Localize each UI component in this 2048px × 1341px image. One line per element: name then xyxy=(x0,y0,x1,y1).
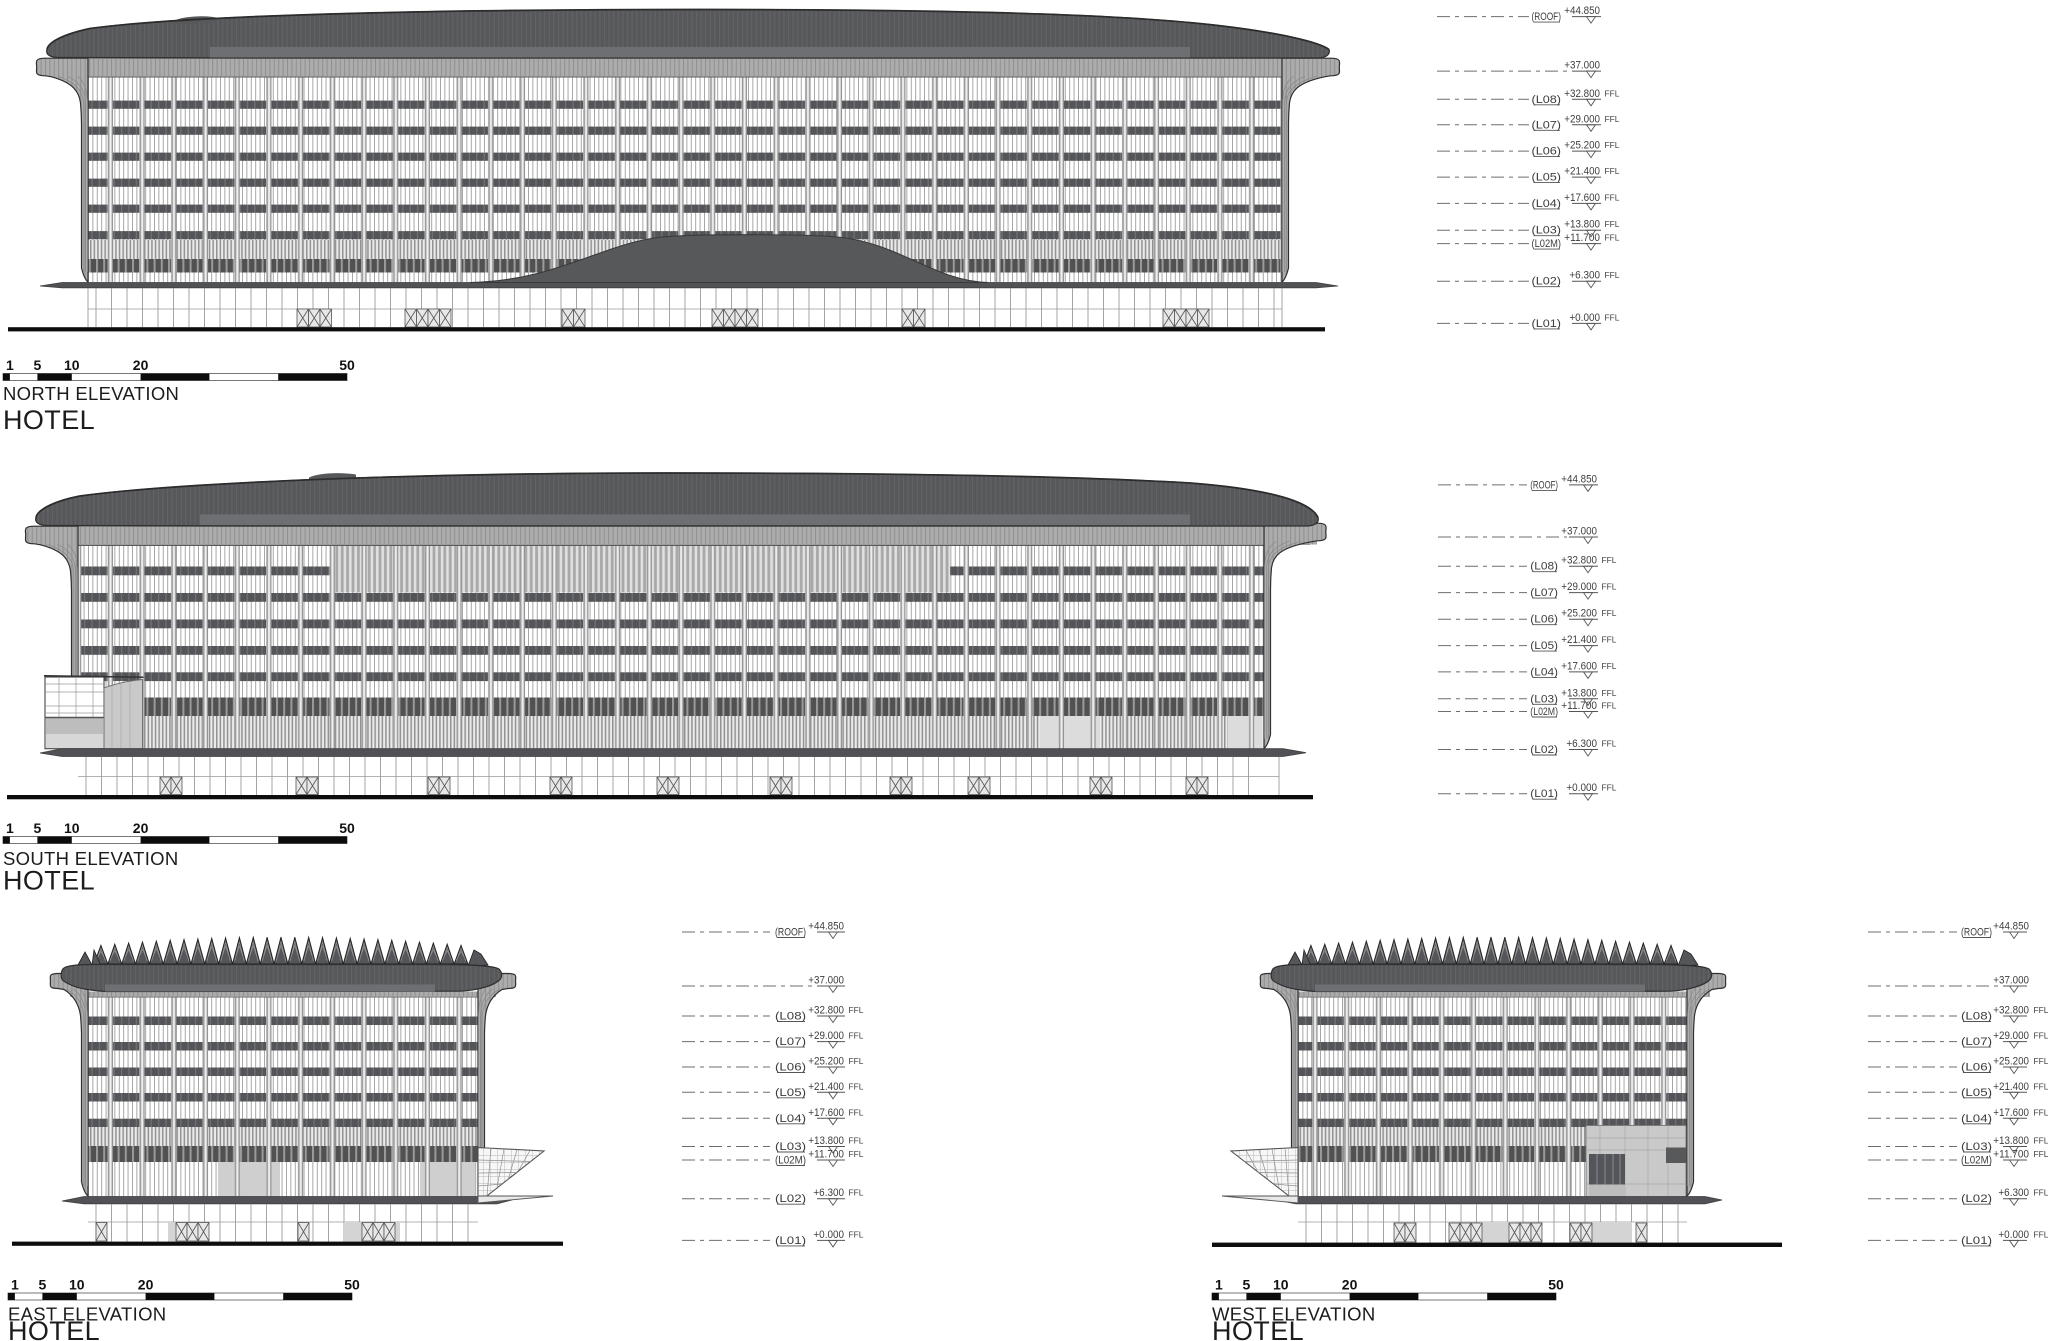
svg-text:10: 10 xyxy=(64,357,80,373)
svg-text:+25.200: +25.200 xyxy=(1564,140,1600,152)
svg-text:+44.850: +44.850 xyxy=(1564,5,1600,17)
svg-text:FFL: FFL xyxy=(1605,114,1620,124)
svg-text:50: 50 xyxy=(339,357,355,373)
svg-text:(L01): (L01) xyxy=(1530,788,1558,800)
svg-text:50: 50 xyxy=(339,820,355,836)
svg-text:+11.700: +11.700 xyxy=(1993,1149,2029,1161)
svg-text:20: 20 xyxy=(133,820,149,836)
svg-text:+0.000: +0.000 xyxy=(813,1229,844,1241)
svg-text:FFL: FFL xyxy=(849,1056,864,1066)
svg-text:+25.200: +25.200 xyxy=(1561,608,1597,620)
svg-text:FFL: FFL xyxy=(1605,270,1620,280)
svg-text:+37.000: +37.000 xyxy=(1564,60,1600,72)
svg-text:(L04): (L04) xyxy=(775,1113,806,1125)
svg-text:+6.300: +6.300 xyxy=(1998,1187,2029,1199)
svg-text:(L03): (L03) xyxy=(775,1141,806,1153)
svg-text:FFL: FFL xyxy=(1605,140,1620,150)
svg-text:FFL: FFL xyxy=(2034,1188,2048,1198)
svg-text:+13.800: +13.800 xyxy=(1564,219,1600,231)
svg-text:20: 20 xyxy=(138,1277,154,1293)
svg-text:(L04): (L04) xyxy=(1532,198,1562,210)
svg-text:FFL: FFL xyxy=(2034,1229,2048,1239)
svg-text:(L08): (L08) xyxy=(1532,94,1562,106)
svg-text:+44.850: +44.850 xyxy=(808,921,844,933)
svg-text:+11.700: +11.700 xyxy=(808,1149,844,1161)
svg-text:FFL: FFL xyxy=(849,1081,864,1091)
svg-text:(L03): (L03) xyxy=(1530,693,1558,705)
svg-text:(L02M): (L02M) xyxy=(1961,1155,1992,1167)
svg-text:20: 20 xyxy=(133,357,149,373)
svg-text:FFL: FFL xyxy=(2034,1149,2048,1159)
svg-text:FFL: FFL xyxy=(2034,1081,2048,1091)
svg-text:FFL: FFL xyxy=(849,1149,864,1159)
svg-text:FFL: FFL xyxy=(1605,312,1620,322)
svg-text:50: 50 xyxy=(344,1277,360,1293)
svg-text:HOTEL: HOTEL xyxy=(3,866,95,896)
svg-text:FFL: FFL xyxy=(1602,608,1617,618)
svg-text:+32.800: +32.800 xyxy=(808,1005,844,1017)
svg-text:+6.300: +6.300 xyxy=(1569,270,1600,282)
svg-text:+0.000: +0.000 xyxy=(1998,1229,2029,1241)
svg-text:(L06): (L06) xyxy=(775,1062,806,1074)
svg-text:+32.800: +32.800 xyxy=(1561,555,1597,567)
svg-text:+21.400: +21.400 xyxy=(808,1081,844,1093)
svg-text:+37.000: +37.000 xyxy=(808,975,844,987)
svg-text:5: 5 xyxy=(34,357,42,373)
svg-text:HOTEL: HOTEL xyxy=(1212,1316,1304,1341)
svg-text:(ROOF): (ROOF) xyxy=(1532,11,1562,23)
svg-text:(L02M): (L02M) xyxy=(1530,706,1558,718)
svg-text:+17.600: +17.600 xyxy=(808,1107,844,1119)
svg-text:(ROOF): (ROOF) xyxy=(1530,479,1558,491)
svg-text:+13.800: +13.800 xyxy=(808,1135,844,1147)
svg-text:(ROOF): (ROOF) xyxy=(1961,927,1992,939)
svg-text:(L02): (L02) xyxy=(1530,744,1558,756)
svg-text:(L08): (L08) xyxy=(1961,1011,1992,1023)
svg-text:+6.300: +6.300 xyxy=(1566,738,1597,750)
svg-text:10: 10 xyxy=(1273,1277,1289,1293)
svg-text:(L05): (L05) xyxy=(775,1087,806,1099)
svg-text:+21.400: +21.400 xyxy=(1564,166,1600,178)
svg-text:FFL: FFL xyxy=(1602,661,1617,671)
svg-text:FFL: FFL xyxy=(1605,192,1620,202)
svg-text:1: 1 xyxy=(6,357,14,373)
svg-text:+13.800: +13.800 xyxy=(1561,687,1597,699)
svg-text:(L08): (L08) xyxy=(775,1011,806,1023)
svg-text:(L05): (L05) xyxy=(1532,172,1562,184)
svg-text:+13.800: +13.800 xyxy=(1993,1135,2029,1147)
svg-text:(L08): (L08) xyxy=(1530,561,1558,573)
svg-text:FFL: FFL xyxy=(2034,1136,2048,1146)
svg-text:(L02): (L02) xyxy=(1961,1193,1992,1205)
svg-text:(L06): (L06) xyxy=(1961,1062,1992,1074)
svg-text:20: 20 xyxy=(1342,1277,1358,1293)
svg-text:+37.000: +37.000 xyxy=(1993,975,2029,987)
svg-text:+32.800: +32.800 xyxy=(1993,1005,2029,1017)
svg-text:(L02M): (L02M) xyxy=(775,1155,806,1167)
svg-text:(L07): (L07) xyxy=(775,1036,806,1048)
svg-text:+44.850: +44.850 xyxy=(1993,921,2029,933)
svg-text:+17.600: +17.600 xyxy=(1993,1107,2029,1119)
svg-text:+25.200: +25.200 xyxy=(1993,1056,2029,1068)
svg-text:FFL: FFL xyxy=(849,1005,864,1015)
svg-text:+29.000: +29.000 xyxy=(808,1030,844,1042)
svg-text:+25.200: +25.200 xyxy=(808,1056,844,1068)
svg-text:+0.000: +0.000 xyxy=(1569,312,1600,324)
svg-text:+29.000: +29.000 xyxy=(1561,581,1597,593)
svg-text:5: 5 xyxy=(34,820,42,836)
svg-text:FFL: FFL xyxy=(1602,783,1617,793)
svg-text:(L02): (L02) xyxy=(775,1193,806,1205)
svg-text:FFL: FFL xyxy=(2034,1031,2048,1041)
svg-text:FFL: FFL xyxy=(1602,701,1617,711)
svg-text:+32.800: +32.800 xyxy=(1564,88,1600,100)
svg-text:FFL: FFL xyxy=(1602,555,1617,565)
svg-text:FFL: FFL xyxy=(1602,582,1617,592)
svg-text:FFL: FFL xyxy=(1602,739,1617,749)
svg-text:FFL: FFL xyxy=(1602,688,1617,698)
svg-text:FFL: FFL xyxy=(2034,1107,2048,1117)
svg-text:5: 5 xyxy=(39,1277,47,1293)
svg-text:(ROOF): (ROOF) xyxy=(775,927,806,939)
svg-text:(L01): (L01) xyxy=(1532,318,1562,330)
svg-text:1: 1 xyxy=(1215,1277,1223,1293)
svg-text:FFL: FFL xyxy=(2034,1005,2048,1015)
svg-text:(L04): (L04) xyxy=(1530,666,1558,678)
svg-text:FFL: FFL xyxy=(1602,635,1617,645)
svg-text:(L02): (L02) xyxy=(1532,276,1562,288)
svg-text:1: 1 xyxy=(6,820,14,836)
svg-text:+21.400: +21.400 xyxy=(1561,634,1597,646)
svg-text:10: 10 xyxy=(69,1277,85,1293)
svg-text:(L07): (L07) xyxy=(1530,587,1558,599)
svg-text:FFL: FFL xyxy=(849,1188,864,1198)
svg-text:+29.000: +29.000 xyxy=(1564,113,1600,125)
svg-text:(L03): (L03) xyxy=(1532,225,1562,237)
svg-text:NORTH ELEVATION: NORTH ELEVATION xyxy=(3,383,179,404)
svg-text:(L05): (L05) xyxy=(1961,1087,1992,1099)
svg-text:+44.850: +44.850 xyxy=(1561,473,1597,485)
svg-text:FFL: FFL xyxy=(2034,1056,2048,1066)
svg-text:+37.000: +37.000 xyxy=(1561,526,1597,538)
svg-text:+6.300: +6.300 xyxy=(813,1187,844,1199)
svg-text:(L03): (L03) xyxy=(1961,1141,1992,1153)
svg-text:FFL: FFL xyxy=(1605,88,1620,98)
svg-text:+17.600: +17.600 xyxy=(1564,192,1600,204)
svg-text:FFL: FFL xyxy=(849,1136,864,1146)
svg-text:FFL: FFL xyxy=(1605,233,1620,243)
svg-text:+17.600: +17.600 xyxy=(1561,660,1597,672)
svg-text:(L01): (L01) xyxy=(1961,1235,1992,1247)
svg-text:+11.700: +11.700 xyxy=(1564,232,1600,244)
svg-text:(L05): (L05) xyxy=(1530,640,1558,652)
svg-text:(L02M): (L02M) xyxy=(1532,238,1562,250)
svg-text:1: 1 xyxy=(11,1277,19,1293)
svg-text:+0.000: +0.000 xyxy=(1566,782,1597,794)
svg-text:+29.000: +29.000 xyxy=(1993,1030,2029,1042)
svg-text:(L04): (L04) xyxy=(1961,1113,1992,1125)
svg-text:50: 50 xyxy=(1548,1277,1564,1293)
svg-text:FFL: FFL xyxy=(1605,166,1620,176)
svg-text:(L07): (L07) xyxy=(1961,1036,1992,1048)
svg-text:+11.700: +11.700 xyxy=(1561,700,1597,712)
svg-text:FFL: FFL xyxy=(849,1107,864,1117)
svg-text:10: 10 xyxy=(64,820,80,836)
svg-text:FFL: FFL xyxy=(1605,219,1620,229)
svg-text:(L06): (L06) xyxy=(1530,614,1558,626)
svg-text:5: 5 xyxy=(1243,1277,1251,1293)
svg-text:(L01): (L01) xyxy=(775,1235,806,1247)
svg-text:HOTEL: HOTEL xyxy=(3,405,95,435)
svg-text:+21.400: +21.400 xyxy=(1993,1081,2029,1093)
svg-text:FFL: FFL xyxy=(849,1031,864,1041)
svg-text:HOTEL: HOTEL xyxy=(8,1316,100,1341)
svg-text:(L06): (L06) xyxy=(1532,146,1562,158)
svg-text:(L07): (L07) xyxy=(1532,119,1562,131)
svg-text:FFL: FFL xyxy=(849,1229,864,1239)
